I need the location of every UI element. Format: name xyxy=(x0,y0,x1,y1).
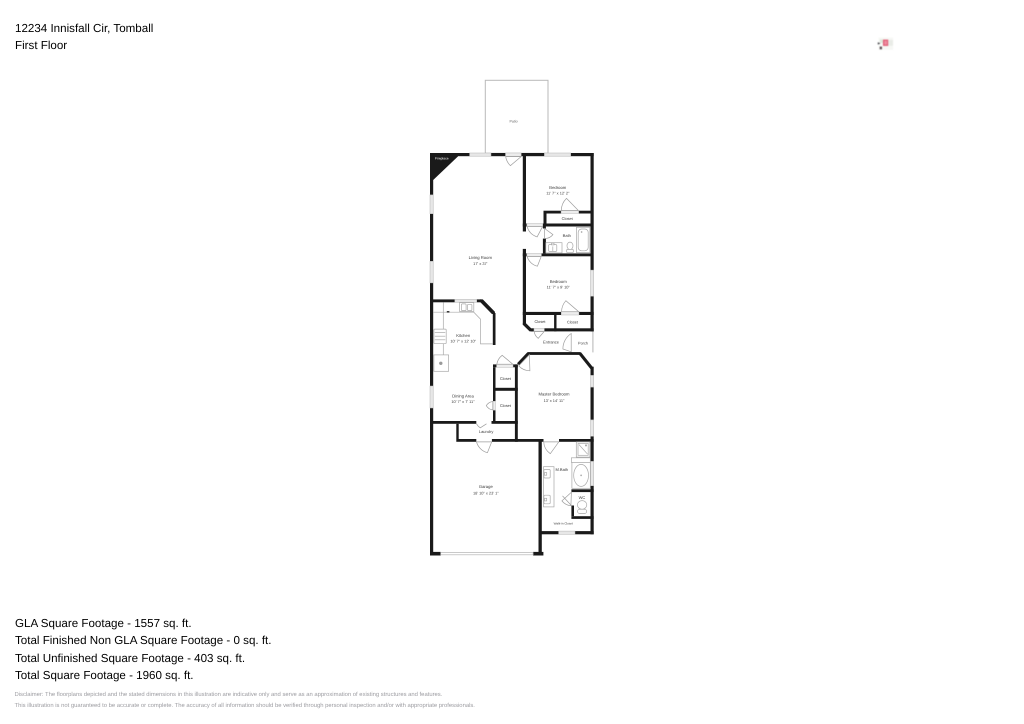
svg-text:Bath: Bath xyxy=(563,233,571,238)
svg-text:Kitchen: Kitchen xyxy=(456,333,471,338)
svg-text:11' 7" x 12' 2": 11' 7" x 12' 2" xyxy=(546,191,570,196)
svg-text:Closet: Closet xyxy=(500,403,512,408)
svg-text:13' x 14' 11": 13' x 14' 11" xyxy=(544,398,565,403)
svg-text:Closet: Closet xyxy=(500,376,512,381)
svg-text:Porch: Porch xyxy=(578,341,588,345)
svg-text:Master Bedroom: Master Bedroom xyxy=(539,392,570,397)
svg-text:Dining Area: Dining Area xyxy=(452,393,474,398)
svg-text:10' 7" x 7' 11": 10' 7" x 7' 11" xyxy=(451,399,475,404)
svg-text:Closet: Closet xyxy=(567,319,579,324)
svg-text:Closet: Closet xyxy=(562,216,574,221)
svg-text:WC: WC xyxy=(579,495,586,500)
svg-text:Bedroom: Bedroom xyxy=(550,279,568,284)
svg-text:11' 7" x 9' 10": 11' 7" x 9' 10" xyxy=(547,285,571,290)
svg-text:Closet: Closet xyxy=(534,319,546,324)
svg-text:Entrance: Entrance xyxy=(543,340,560,345)
svg-text:Patio: Patio xyxy=(509,120,517,124)
svg-text:Living Room: Living Room xyxy=(469,255,493,260)
svg-text:M.Bath: M.Bath xyxy=(555,467,568,472)
svg-text:17' x 37': 17' x 37' xyxy=(473,261,488,266)
svg-text:18' 10" x 23' 1": 18' 10" x 23' 1" xyxy=(473,490,499,495)
svg-text:Walk-in Closet: Walk-in Closet xyxy=(554,521,573,525)
svg-text:Garage: Garage xyxy=(479,484,494,489)
svg-text:Bedroom: Bedroom xyxy=(549,185,567,190)
svg-text:10' 7" x 12' 10": 10' 7" x 12' 10" xyxy=(450,338,476,343)
svg-text:Fireplace: Fireplace xyxy=(435,156,449,160)
svg-text:Laundry: Laundry xyxy=(479,429,493,434)
